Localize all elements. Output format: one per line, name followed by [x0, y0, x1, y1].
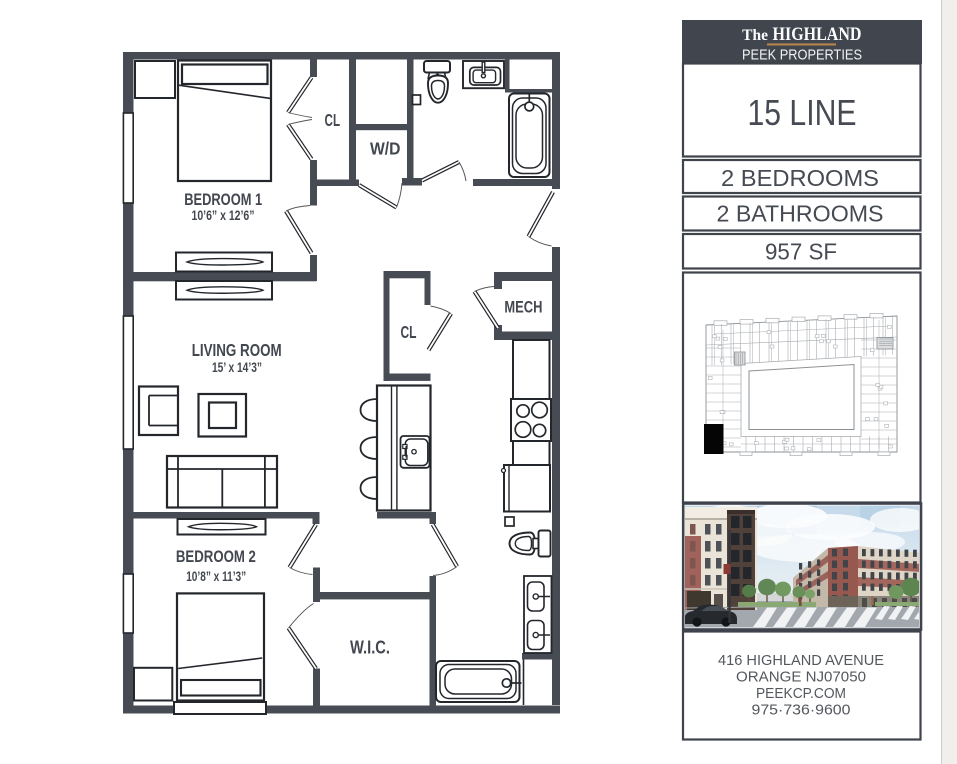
svg-text:MECH: MECH: [504, 297, 542, 316]
svg-text:W/D: W/D: [370, 139, 401, 159]
svg-text:ORANGE NJ07050: ORANGE NJ07050: [736, 670, 866, 686]
svg-text:HIGHLAND: HIGHLAND: [773, 24, 862, 45]
svg-text:416 HIGHLAND AVENUE: 416 HIGHLAND AVENUE: [718, 653, 884, 669]
svg-text:BEDROOM 1: BEDROOM 1: [184, 191, 262, 209]
svg-text:15 LINE: 15 LINE: [748, 92, 857, 133]
svg-text:W.I.C.: W.I.C.: [350, 638, 390, 658]
svg-text:10’8” x 11’3”: 10’8” x 11’3”: [186, 569, 246, 585]
svg-text:CL: CL: [325, 110, 341, 130]
svg-text:PEEK PROPERTIES: PEEK PROPERTIES: [742, 47, 862, 64]
svg-text:BEDROOM 2: BEDROOM 2: [176, 548, 256, 566]
svg-text:957 SF: 957 SF: [765, 239, 837, 265]
svg-text:2 BEDROOMS: 2 BEDROOMS: [721, 165, 879, 191]
svg-text:LIVING ROOM: LIVING ROOM: [192, 340, 282, 360]
svg-text:PEEKCP.COM: PEEKCP.COM: [756, 686, 846, 702]
svg-text:2 BATHROOMS: 2 BATHROOMS: [717, 201, 884, 227]
svg-text:The: The: [742, 27, 768, 44]
svg-text:10’6” x 12’6”: 10’6” x 12’6”: [192, 208, 255, 224]
svg-text:15’ x 14’3”: 15’ x 14’3”: [212, 360, 262, 376]
svg-text:CL: CL: [401, 322, 417, 342]
svg-text:975·736·9600: 975·736·9600: [752, 703, 851, 719]
